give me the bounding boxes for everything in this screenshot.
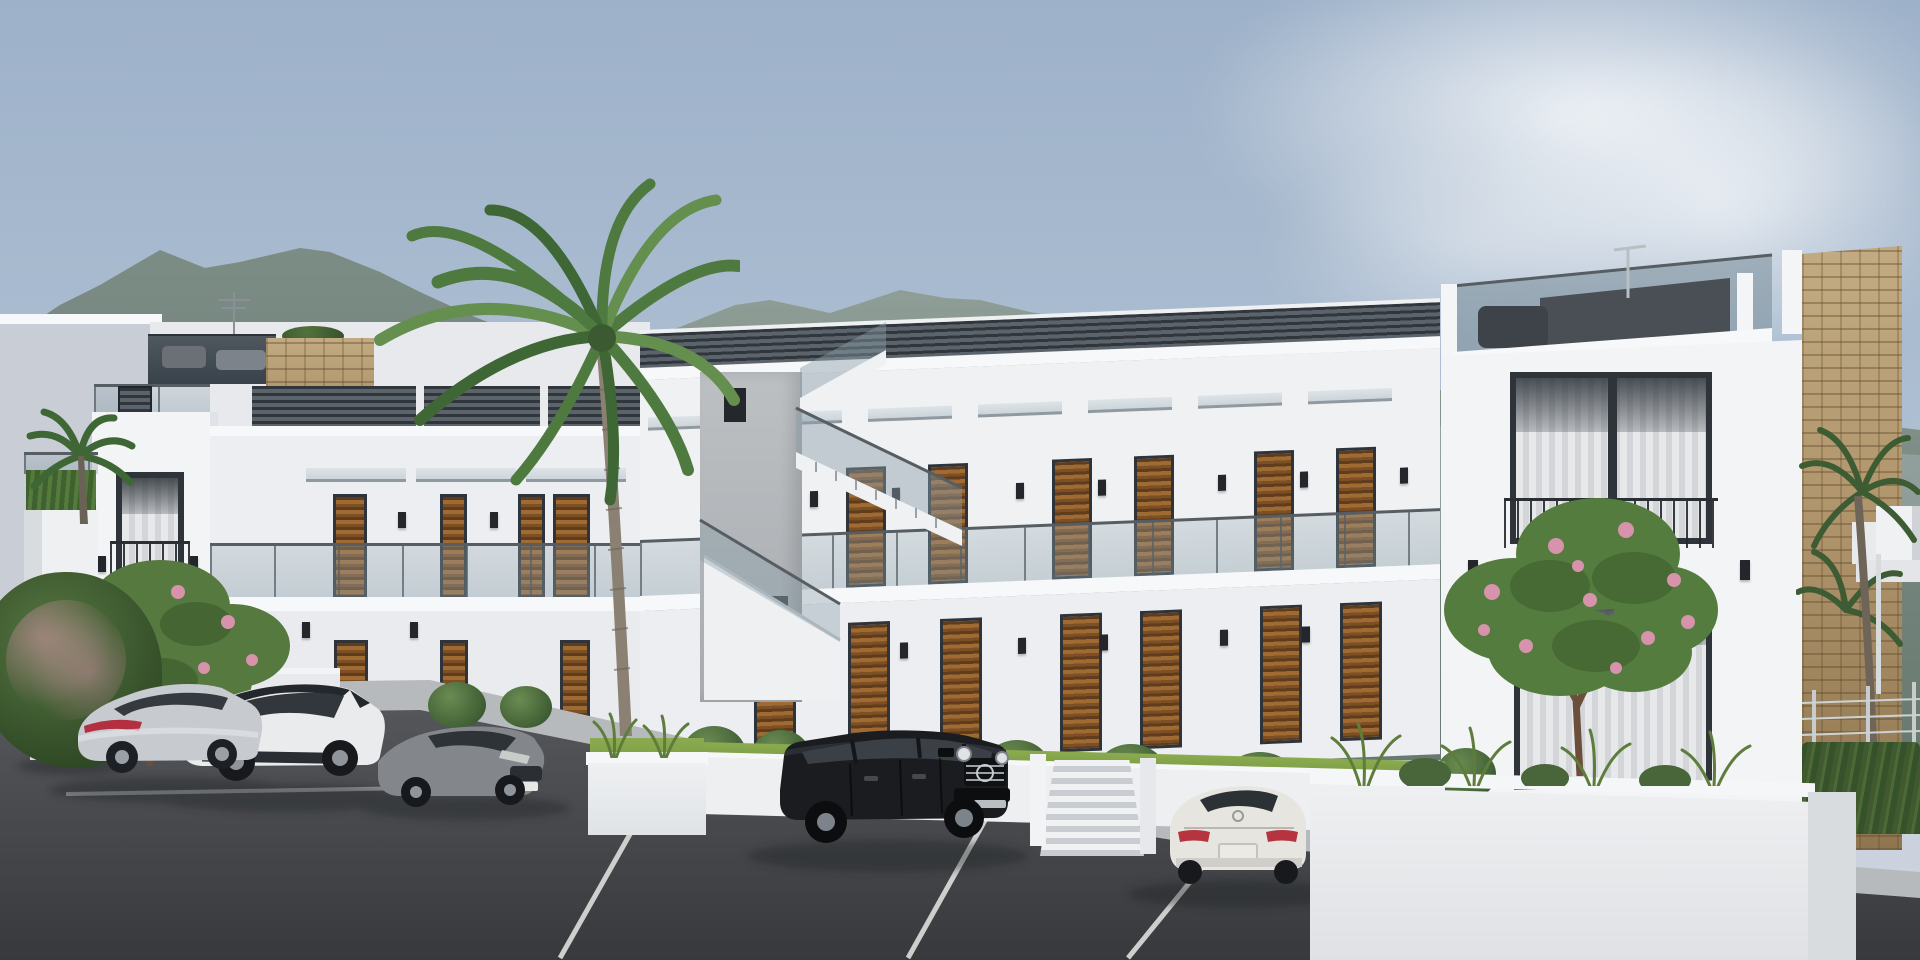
- ornamental-grass: [592, 712, 702, 758]
- architectural-render-scene: [0, 0, 1920, 960]
- car-grey-sedan: [372, 688, 552, 816]
- right-planter-face: [1310, 780, 1815, 960]
- car-silver-sedan: [70, 658, 270, 786]
- stair-side-wall: [1140, 758, 1156, 854]
- entrance-stairs: [1040, 760, 1144, 856]
- stair-side-wall: [1030, 754, 1046, 846]
- planter-box: [588, 763, 706, 835]
- car-white-mercedes: [1156, 758, 1320, 900]
- car-black-gwagon: [768, 694, 1016, 862]
- ornamental-grasses-right: [1320, 716, 1800, 786]
- right-planter-return: [1808, 792, 1856, 960]
